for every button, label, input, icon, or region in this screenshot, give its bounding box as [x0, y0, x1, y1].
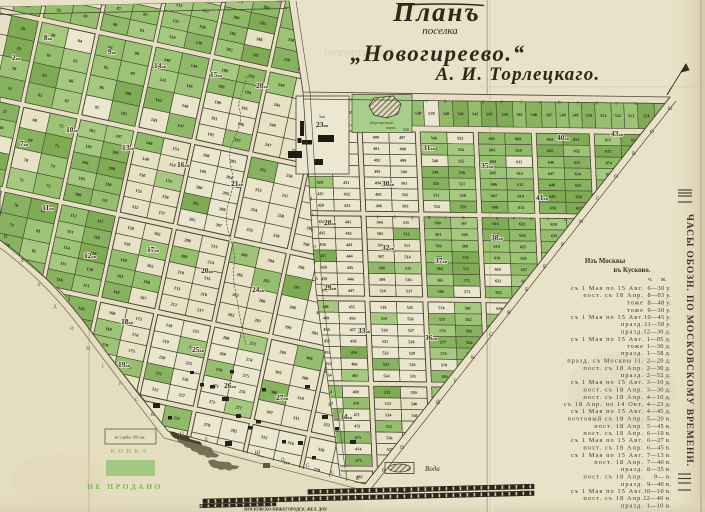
svg-text:509: 509	[379, 277, 386, 282]
svg-text:552: 552	[434, 204, 441, 209]
svg-text:12—40 н.: 12—40 н.	[643, 495, 671, 502]
svg-text:436: 436	[319, 242, 326, 247]
svg-text:443: 443	[346, 242, 353, 247]
svg-text:624: 624	[519, 233, 526, 238]
svg-text:5кв: 5кв	[319, 114, 325, 119]
svg-text:Вода: Вода	[425, 465, 440, 473]
svg-text:П: П	[558, 101, 561, 105]
svg-text:Е: Е	[205, 438, 208, 443]
svg-text:10—45 у.: 10—45 у.	[644, 314, 671, 321]
svg-text:м.: м.	[661, 277, 667, 283]
svg-text:2—20 д.: 2—20 д.	[647, 358, 671, 365]
svg-text:497: 497	[399, 135, 406, 140]
svg-text:Р: Р	[513, 217, 515, 221]
svg-text:547: 547	[546, 112, 554, 117]
svg-text:496: 496	[376, 203, 383, 208]
svg-text:9—30 у.: 9—30 у.	[647, 307, 671, 314]
svg-text:Р: Р	[561, 242, 564, 248]
svg-text:паркъ: паркъ	[387, 126, 396, 130]
svg-text:550: 550	[585, 113, 592, 118]
svg-text:446: 446	[347, 276, 354, 281]
svg-text:540: 540	[411, 401, 418, 406]
svg-text:въ 1 дюйм. 100 саж.: въ 1 дюйм. 100 саж.	[115, 436, 146, 440]
svg-text:648: 648	[549, 182, 556, 187]
svg-text:558: 558	[459, 193, 466, 198]
svg-text:473: 473	[354, 435, 361, 440]
svg-text:658: 658	[550, 222, 557, 227]
svg-text:511: 511	[403, 220, 409, 225]
svg-text:425: 425	[317, 191, 324, 196]
svg-text:557: 557	[459, 181, 466, 186]
svg-text:571: 571	[463, 266, 470, 271]
svg-text:517: 517	[406, 289, 413, 294]
svg-text:461: 461	[352, 373, 359, 378]
svg-text:527: 527	[408, 328, 415, 333]
svg-text:празд.: празд.	[621, 329, 644, 336]
svg-text:532: 532	[384, 390, 391, 395]
svg-text:447: 447	[348, 288, 355, 293]
svg-text:541: 541	[411, 413, 418, 418]
svg-text:575: 575	[439, 317, 446, 322]
svg-text:П: П	[400, 445, 404, 451]
svg-text:4—45 д.: 4—45 д.	[647, 408, 671, 415]
svg-text:501: 501	[401, 181, 408, 186]
svg-text:564: 564	[436, 266, 443, 271]
svg-text:пост. съ 18 Апр.: пост. съ 18 Апр.	[583, 394, 644, 401]
svg-text:439: 439	[321, 276, 328, 281]
svg-text:471: 471	[353, 412, 360, 417]
svg-text:605: 605	[490, 170, 497, 175]
svg-text:празд.: празд.	[621, 372, 644, 379]
svg-text:пост. съ 18 Апр.: пост. съ 18 Апр.	[583, 292, 644, 299]
svg-text:526: 526	[407, 316, 414, 321]
svg-text:9—40 в.: 9—40 в.	[647, 481, 671, 488]
svg-text:647: 647	[548, 171, 555, 176]
svg-text:672: 672	[605, 137, 612, 142]
svg-text:583: 583	[466, 329, 473, 334]
svg-text:545: 545	[516, 112, 523, 117]
svg-text:565: 565	[437, 277, 444, 282]
svg-text:В: В	[507, 310, 511, 316]
svg-text:530: 530	[409, 362, 416, 367]
svg-text:431: 431	[343, 180, 350, 185]
svg-text:539: 539	[410, 390, 417, 395]
svg-text:504: 504	[376, 220, 383, 225]
svg-text:458: 458	[350, 339, 357, 344]
svg-text:556: 556	[458, 170, 465, 175]
svg-text:505: 505	[377, 231, 384, 236]
svg-text:441: 441	[345, 219, 352, 224]
svg-text:520: 520	[381, 328, 388, 333]
svg-text:500: 500	[400, 169, 407, 174]
svg-text:Й: Й	[436, 398, 440, 406]
svg-text:457: 457	[350, 327, 357, 332]
svg-text:459: 459	[351, 350, 358, 355]
svg-text:450: 450	[323, 327, 330, 332]
svg-text:619: 619	[494, 255, 501, 260]
svg-text:653: 653	[574, 160, 581, 165]
svg-text:579: 579	[441, 362, 448, 367]
svg-text:510: 510	[379, 288, 386, 293]
svg-text:съ 1 Мая по 15 Авг.: съ 1 Мая по 15 Авг.	[571, 379, 644, 386]
svg-text:3—10 д.: 3—10 д.	[647, 379, 671, 386]
svg-text:573: 573	[464, 289, 471, 294]
svg-text:съ 18 Апр. по 14 Окт.: съ 18 Апр. по 14 Окт.	[564, 401, 644, 408]
svg-text:8—35 в.: 8—35 в.	[647, 466, 671, 473]
svg-text:празд.: празд.	[621, 350, 644, 357]
svg-text:548: 548	[559, 112, 566, 117]
svg-text:445: 445	[347, 265, 354, 270]
svg-text:491: 491	[373, 146, 380, 151]
svg-text:522: 522	[382, 350, 389, 355]
svg-text:568: 568	[461, 232, 468, 237]
svg-text:615: 615	[518, 205, 525, 210]
svg-text:533: 533	[385, 401, 392, 406]
svg-text:528: 528	[408, 339, 415, 344]
svg-text:516: 516	[405, 277, 412, 282]
svg-text:пост. съ 18 Апр.: пост. съ 18 Апр.	[583, 445, 644, 452]
svg-text:645: 645	[547, 148, 554, 153]
svg-text:650: 650	[550, 205, 557, 210]
svg-text:613: 613	[517, 182, 524, 187]
svg-text:555: 555	[458, 159, 465, 164]
svg-text:О: О	[520, 101, 523, 105]
svg-text:616: 616	[492, 221, 499, 226]
svg-text:512: 512	[403, 231, 410, 236]
svg-text:424: 424	[317, 180, 324, 185]
svg-text:тоже: тоже	[627, 343, 644, 350]
svg-text:614: 614	[517, 194, 524, 199]
svg-text:Й: Й	[462, 216, 465, 221]
svg-text:МОСКОВСКО-НИЖЕГОРОДСК. ЖЕЛ. ДО: МОСКОВСКО-НИЖЕГОРОДСК. ЖЕЛ. ДОР.	[244, 507, 327, 512]
svg-text:515: 515	[405, 266, 412, 271]
svg-text:626: 626	[520, 256, 527, 261]
svg-text:6—30 у.: 6—30 у.	[647, 285, 671, 292]
svg-text:561: 561	[435, 232, 442, 237]
svg-text:673: 673	[605, 149, 612, 154]
svg-text:552: 552	[614, 113, 621, 118]
svg-text:623: 623	[519, 221, 526, 226]
svg-text:5—45 в.: 5—45 в.	[647, 423, 671, 430]
svg-text:4—10 д.: 4—10 д.	[647, 394, 671, 401]
svg-text:438: 438	[320, 265, 327, 270]
svg-text:492: 492	[374, 158, 381, 163]
svg-text:Н: Н	[668, 106, 672, 112]
svg-text:НЕ ПРОДАНО: НЕ ПРОДАНО	[87, 482, 163, 491]
svg-text:451: 451	[324, 338, 331, 343]
svg-text:съ 1 Мая по 15 Авг.: съ 1 Мая по 15 Авг.	[571, 408, 644, 415]
svg-text:Е: Е	[356, 477, 359, 482]
svg-text:празд.: празд.	[621, 481, 644, 488]
svg-text:8—48 у.: 8—48 у.	[647, 300, 671, 307]
svg-text:11—58 у.: 11—58 у.	[644, 321, 671, 328]
svg-text:9— в.: 9— в.	[654, 474, 671, 481]
svg-text:531: 531	[410, 374, 417, 379]
svg-text:549: 549	[432, 170, 439, 175]
svg-text:502: 502	[401, 192, 408, 197]
svg-text:О: О	[281, 458, 285, 463]
svg-text:659: 659	[551, 233, 558, 238]
svg-text:съ 1 Мая по 15 Авг.: съ 1 Мая по 15 Авг.	[571, 488, 644, 495]
svg-text:560: 560	[434, 220, 441, 225]
svg-text:562: 562	[435, 243, 442, 248]
svg-text:508: 508	[378, 265, 385, 270]
svg-text:6—27 в.: 6—27 в.	[647, 437, 671, 444]
svg-text:общественный: общественный	[369, 120, 392, 125]
svg-text:581: 581	[465, 306, 472, 311]
svg-text:518: 518	[380, 305, 387, 310]
svg-text:442: 442	[345, 231, 352, 236]
svg-text:535: 535	[386, 424, 393, 429]
svg-text:Н: Н	[428, 216, 431, 220]
svg-text:поселка: поселка	[422, 25, 458, 37]
svg-text:553: 553	[628, 113, 635, 118]
svg-text:ч.: ч.	[648, 277, 653, 283]
svg-text:1—05 д.: 1—05 д.	[647, 336, 671, 343]
svg-text:Изъ Москвы: Изъ Москвы	[585, 257, 626, 265]
svg-text:580: 580	[441, 374, 448, 379]
svg-text:съ 1 Мая по 15 Авг.: съ 1 Мая по 15 Авг.	[571, 336, 644, 343]
svg-text:10—10 в.: 10—10 в.	[644, 488, 672, 495]
svg-text:548: 548	[432, 158, 439, 163]
svg-text:539: 539	[428, 111, 435, 116]
svg-text:570: 570	[462, 255, 469, 260]
svg-text:Планъ: Планъ	[392, 0, 481, 27]
svg-text:437: 437	[320, 253, 327, 258]
svg-text:566: 566	[437, 289, 444, 294]
svg-text:Й: Й	[444, 99, 447, 104]
svg-text:475: 475	[355, 458, 362, 463]
svg-text:649: 649	[549, 194, 556, 199]
svg-text:469: 469	[352, 389, 359, 394]
svg-text:609: 609	[515, 136, 522, 141]
svg-text:495: 495	[375, 192, 382, 197]
svg-text:656: 656	[575, 194, 582, 199]
svg-text:540: 540	[443, 111, 450, 116]
svg-text:470: 470	[353, 401, 360, 406]
svg-text:О: О	[650, 129, 654, 135]
svg-text:655: 655	[575, 183, 582, 188]
svg-text:493: 493	[374, 169, 381, 174]
svg-text:494: 494	[375, 180, 382, 185]
svg-text:612: 612	[516, 171, 523, 176]
svg-text:574: 574	[438, 305, 445, 310]
svg-text:7—13 в.: 7—13 в.	[647, 452, 671, 459]
svg-text:„Новогиреево.“: „Новогиреево.“	[350, 41, 525, 66]
svg-text:618: 618	[493, 244, 500, 249]
svg-text:554: 554	[643, 113, 651, 118]
svg-text:П: П	[564, 218, 567, 222]
svg-text:646: 646	[548, 160, 555, 165]
svg-text:пост. съ 18 Апр.: пост. съ 18 Апр.	[583, 474, 644, 481]
svg-text:576: 576	[439, 328, 446, 333]
svg-text:почтовый съ 18 Апр.: почтовый съ 18 Апр.	[567, 416, 644, 423]
svg-text:пост. съ 18 Апр.: пост. съ 18 Апр.	[583, 430, 644, 437]
svg-text:К: К	[471, 355, 475, 361]
svg-text:578: 578	[440, 351, 447, 356]
svg-text:празд. съ Москвы II.: празд. съ Москвы II.	[567, 358, 644, 365]
svg-text:498: 498	[399, 146, 406, 151]
svg-text:пост. съ 18 Апр.: пост. съ 18 Апр.	[583, 387, 644, 394]
svg-text:6—45 в.: 6—45 в.	[647, 445, 671, 452]
svg-text:507: 507	[378, 254, 385, 259]
svg-text:529: 529	[409, 351, 416, 356]
svg-text:1—58 д.: 1—58 д.	[647, 350, 671, 357]
svg-text:620: 620	[494, 267, 501, 272]
svg-text:572: 572	[463, 278, 470, 283]
svg-text:празд.: празд.	[621, 503, 644, 510]
svg-text:4—23 д.: 4—23 д.	[647, 401, 671, 408]
svg-text:8—03 у.: 8—03 у.	[647, 292, 671, 299]
svg-text:530: 530	[403, 127, 409, 132]
svg-text:пост. съ 18 Апр.: пост. съ 18 Апр.	[583, 365, 644, 372]
svg-text:541: 541	[457, 111, 464, 116]
svg-text:474: 474	[355, 446, 362, 451]
svg-text:КОНКА: КОНКА	[110, 448, 149, 455]
svg-text:432: 432	[343, 191, 350, 196]
svg-text:2—30 д.: 2—30 д.	[647, 365, 671, 372]
svg-text:606: 606	[491, 182, 498, 187]
svg-text:1—30 д.: 1—30 д.	[647, 343, 671, 350]
svg-text:456: 456	[349, 316, 356, 321]
svg-text:1—10 н.: 1—10 н.	[647, 503, 671, 510]
svg-text:въ Кусково.: въ Кусково.	[614, 266, 651, 274]
svg-text:622: 622	[495, 290, 502, 295]
svg-text:651: 651	[573, 137, 580, 142]
svg-text:472: 472	[354, 424, 361, 429]
svg-text:652: 652	[573, 148, 580, 153]
svg-text:521: 521	[382, 339, 389, 344]
svg-text:Д: Д	[309, 196, 312, 201]
svg-text:В: В	[632, 151, 636, 157]
svg-text:пост. 18 Апр.: пост. 18 Апр.	[594, 459, 644, 466]
svg-text:621: 621	[495, 278, 502, 283]
svg-text:455: 455	[349, 304, 356, 309]
svg-text:550: 550	[433, 181, 440, 186]
svg-text:514: 514	[404, 254, 411, 259]
svg-text:569: 569	[462, 244, 469, 249]
svg-text:553: 553	[457, 136, 464, 141]
svg-text:525: 525	[407, 305, 414, 310]
svg-text:тоже: тоже	[627, 300, 644, 307]
svg-text:608: 608	[492, 205, 499, 210]
svg-text:536: 536	[386, 435, 393, 440]
svg-text:5—20 в.: 5—20 в.	[647, 416, 671, 423]
svg-text:551: 551	[600, 113, 607, 118]
svg-text:съ 1 Мая по 15 Авг.: съ 1 Мая по 15 Авг.	[571, 452, 644, 459]
svg-text:546: 546	[530, 112, 538, 117]
svg-text:съ 1 Мая по 15 Авг.: съ 1 Мая по 15 Авг.	[571, 314, 644, 321]
svg-text:544: 544	[501, 112, 509, 117]
svg-text:І: І	[454, 378, 456, 384]
svg-text:празд.: празд.	[621, 321, 644, 328]
svg-text:607: 607	[491, 193, 498, 198]
svg-text:543: 543	[486, 111, 493, 116]
svg-text:О: О	[530, 217, 533, 221]
svg-text:Р: Р	[501, 101, 503, 105]
svg-text:551: 551	[433, 192, 440, 197]
svg-text:499: 499	[400, 158, 407, 163]
svg-text:554: 554	[457, 147, 464, 152]
svg-text:И: И	[579, 219, 583, 225]
svg-text:426: 426	[318, 203, 325, 208]
svg-text:549: 549	[572, 113, 579, 118]
svg-text:448: 448	[322, 304, 329, 309]
svg-text:ЧАСЫ ОБОЗН. ПО МОСКОВСКОМУ ВРЕ: ЧАСЫ ОБОЗН. ПО МОСКОВСКОМУ ВРЕМЕНИ.	[684, 214, 694, 466]
svg-text:654: 654	[574, 171, 581, 176]
svg-text:6—10 в.: 6—10 в.	[647, 430, 671, 437]
svg-text:3—30 д.: 3—30 д.	[647, 387, 671, 394]
svg-text:празд.: празд.	[621, 466, 644, 473]
svg-text:Ш: Ш	[255, 451, 260, 456]
svg-text:2—52 д.: 2—52 д.	[647, 372, 671, 379]
svg-text:Г: Г	[314, 260, 317, 265]
svg-text:577: 577	[440, 340, 447, 345]
svg-text:546: 546	[431, 135, 438, 140]
svg-text:625: 625	[520, 244, 527, 249]
svg-text:644: 644	[547, 137, 554, 142]
svg-text:674: 674	[606, 160, 613, 165]
svg-text:12—30 д.: 12—30 д.	[643, 329, 671, 336]
svg-text:7—40 в.: 7—40 в.	[647, 459, 671, 466]
svg-text:съ 1 Мая по 15 Авг.: съ 1 Мая по 15 Авг.	[571, 285, 644, 292]
svg-text:582: 582	[465, 317, 472, 322]
svg-text:Г: Г	[596, 196, 599, 202]
svg-text:610: 610	[515, 148, 522, 153]
svg-text:513: 513	[404, 243, 411, 248]
svg-text:460: 460	[351, 361, 358, 366]
svg-text:пост. съ 18 Апр.: пост. съ 18 Апр.	[583, 495, 644, 502]
svg-text:519: 519	[381, 316, 388, 321]
svg-text:А. И. Торлецкаго.: А. И. Торлецкаго.	[435, 64, 601, 85]
svg-text:559: 559	[460, 204, 467, 209]
svg-text:444: 444	[346, 254, 353, 259]
svg-text:627: 627	[521, 267, 528, 272]
svg-text:съ 1 Мая по 15 Авг.: съ 1 Мая по 15 Авг.	[571, 437, 644, 444]
svg-text:435: 435	[319, 230, 326, 235]
svg-text:490: 490	[373, 135, 380, 140]
svg-text:611: 611	[516, 159, 522, 164]
svg-text:538: 538	[415, 111, 422, 116]
svg-text:тоже: тоже	[627, 307, 644, 314]
svg-text:пост. 18 Апр.: пост. 18 Апр.	[594, 423, 644, 430]
svg-text:Р: Р	[377, 216, 379, 220]
svg-text:567: 567	[461, 221, 468, 226]
svg-text:524: 524	[383, 373, 390, 378]
svg-text:534: 534	[385, 413, 392, 418]
svg-text:542: 542	[472, 111, 479, 116]
svg-text:П: П	[496, 217, 499, 221]
svg-text:584: 584	[466, 340, 473, 345]
svg-text:523: 523	[383, 362, 390, 367]
svg-text:433: 433	[344, 203, 351, 208]
svg-text:503: 503	[402, 204, 409, 209]
svg-text:О: О	[614, 174, 618, 180]
